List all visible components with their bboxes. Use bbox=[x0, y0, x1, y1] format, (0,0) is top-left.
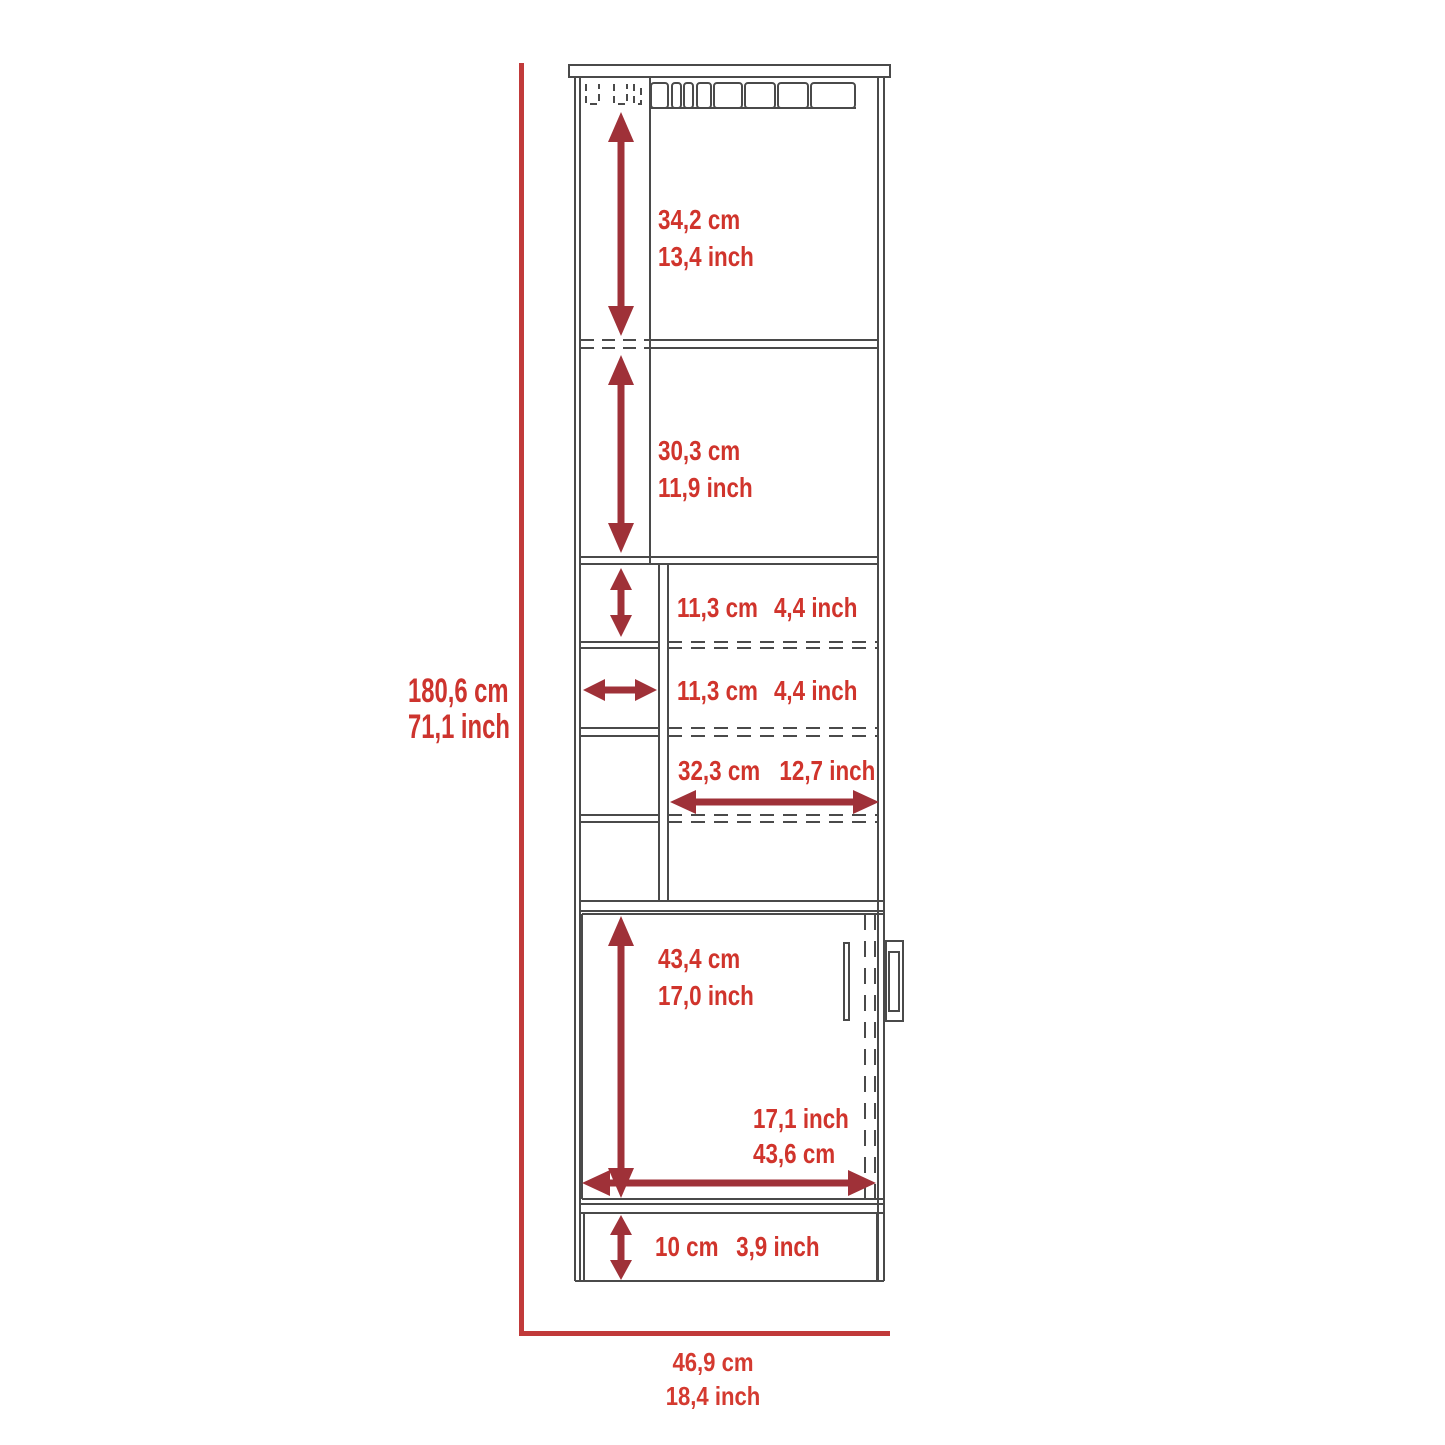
stemware-slot bbox=[697, 83, 711, 108]
stemware-slot bbox=[745, 83, 775, 108]
dim-label-door-width: 17,1 inch 43,6 cm bbox=[753, 1101, 873, 1171]
stemware-slot-hidden bbox=[634, 84, 641, 104]
cabinet-top-panel bbox=[569, 65, 890, 77]
arrow-door-height bbox=[608, 916, 634, 1198]
dim-top-section-metric: 34,2 cm bbox=[658, 201, 754, 238]
stemware-slot bbox=[684, 83, 693, 108]
stemware-slot bbox=[651, 83, 668, 108]
shelf-hidden-edge bbox=[581, 340, 649, 348]
dim-overall-height-metric: 180,6 cm bbox=[408, 673, 510, 709]
base-top-edge bbox=[580, 1204, 884, 1213]
dim-cubby-width-imperial: 4,4 inch bbox=[774, 675, 857, 706]
middle-shelf bbox=[581, 557, 878, 564]
dim-second-section-metric: 30,3 cm bbox=[658, 432, 753, 469]
arrow-cubby-height bbox=[610, 568, 632, 637]
dim-overall-height-imperial: 71,1 inch bbox=[408, 709, 510, 745]
dim-door-height-imperial: 17,0 inch bbox=[658, 977, 754, 1014]
arrow-second-section-height bbox=[608, 355, 634, 553]
upper-shelf bbox=[650, 340, 878, 348]
stemware-slot-hidden bbox=[586, 84, 599, 104]
dim-shelf-width-imperial: 12,7 inch bbox=[779, 755, 875, 786]
dim-label-overall-height: 180,6 cm 71,1 inch bbox=[408, 673, 554, 745]
dim-door-width-metric: 43,6 cm bbox=[753, 1136, 849, 1171]
stemware-slot-hidden bbox=[614, 84, 627, 104]
hidden-shelf-edge bbox=[668, 728, 878, 736]
dim-cubby-height-metric: 11,3 cm bbox=[677, 592, 758, 623]
stemware-rack bbox=[586, 83, 856, 108]
dim-label-cubby-width: 11,3 cm4,4 inch bbox=[677, 672, 902, 709]
dim-base-height-metric: 10 cm bbox=[655, 1231, 719, 1262]
dim-shelf-width-metric: 32,3 cm bbox=[678, 755, 760, 786]
dim-top-section-imperial: 13,4 inch bbox=[658, 238, 754, 275]
dim-base-height-imperial: 3,9 inch bbox=[736, 1231, 819, 1262]
door-handle-front bbox=[844, 943, 849, 1020]
dim-door-width-imperial: 17,1 inch bbox=[753, 1101, 849, 1136]
arrow-top-section-height bbox=[608, 112, 634, 336]
hidden-shelf-edge bbox=[668, 642, 878, 648]
stemware-slot bbox=[778, 83, 808, 108]
dim-second-section-imperial: 11,9 inch bbox=[658, 469, 753, 506]
cubby-shelf bbox=[581, 728, 659, 736]
dim-cubby-width-metric: 11,3 cm bbox=[677, 675, 758, 706]
lower-shelf bbox=[581, 901, 884, 911]
stemware-slot bbox=[811, 83, 855, 108]
cabinet-left-wall bbox=[575, 77, 580, 1281]
hidden-shelf-edge bbox=[668, 815, 878, 822]
dim-label-shelf-width: 32,3 cm12,7 inch bbox=[678, 752, 925, 789]
dim-label-top-section: 34,2 cm 13,4 inch bbox=[658, 201, 778, 275]
dim-label-door-height: 43,4 cm 17,0 inch bbox=[658, 940, 778, 1014]
stemware-slot bbox=[714, 83, 742, 108]
dim-label-base-height: 10 cm3,9 inch bbox=[655, 1228, 861, 1265]
arrow-base-height bbox=[610, 1215, 632, 1280]
dim-label-overall-width: 46,9 cm 18,4 inch bbox=[593, 1345, 833, 1413]
dim-label-cubby-height: 11,3 cm4,4 inch bbox=[677, 589, 902, 626]
dim-cubby-height-imperial: 4,4 inch bbox=[774, 592, 857, 623]
cubby-shelf bbox=[581, 815, 659, 822]
arrow-shelf-width bbox=[670, 790, 879, 814]
dim-door-height-metric: 43,4 cm bbox=[658, 940, 754, 977]
cubby-shelf bbox=[581, 642, 659, 648]
dim-overall-width-metric: 46,9 cm bbox=[611, 1345, 815, 1379]
dim-overall-width-imperial: 18,4 inch bbox=[611, 1379, 815, 1413]
arrow-cubby-width bbox=[583, 679, 657, 701]
dimension-diagram: 34,2 cm 13,4 inch 30,3 cm 11,9 inch 11,3… bbox=[0, 0, 1445, 1445]
dim-label-second-section: 30,3 cm 11,9 inch bbox=[658, 432, 776, 506]
door-handle-grip bbox=[889, 952, 899, 1011]
wine-rack-partition bbox=[659, 564, 668, 901]
stemware-slot bbox=[672, 83, 681, 108]
